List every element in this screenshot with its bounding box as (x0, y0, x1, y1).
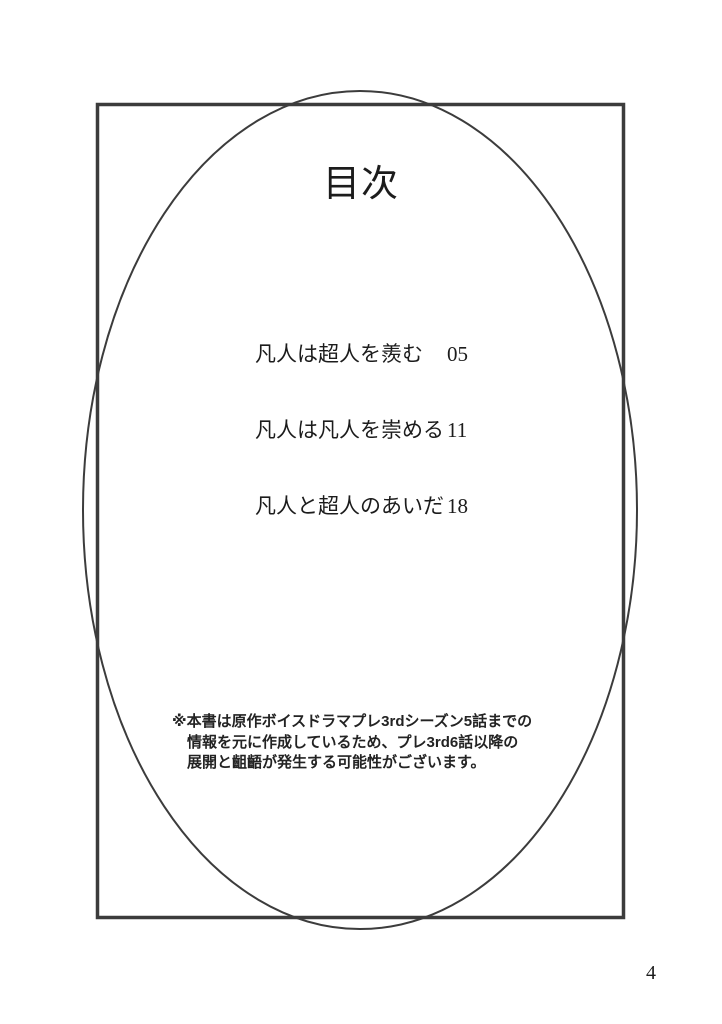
toc-entry-label: 凡人と超人のあいだ (255, 493, 447, 520)
page-title: 目次 (0, 165, 722, 206)
disclaimer-line: 情報を元に作成しているため、プレ3rd6話以降の (172, 733, 532, 754)
toc-entry-label: 凡人は凡人を崇める (255, 417, 447, 444)
toc-list: 凡人は超人を羨む 05 凡人は凡人を崇める 11 凡人と超人のあいだ 18 (255, 341, 468, 520)
toc-entry-label: 凡人は超人を羨む (255, 341, 447, 368)
disclaimer-line: ※本書は原作ボイスドラマプレ3rdシーズン5話までの (172, 712, 532, 733)
toc-entry: 凡人は凡人を崇める 11 (255, 417, 468, 444)
toc-entry-page-number: 18 (447, 493, 468, 520)
toc-entry: 凡人と超人のあいだ 18 (255, 493, 468, 520)
toc-page: 目次 凡人は超人を羨む 05 凡人は凡人を崇める 11 凡人と超人のあいだ 18… (0, 0, 722, 1024)
toc-entry: 凡人は超人を羨む 05 (255, 341, 468, 368)
toc-entry-page-number: 05 (447, 341, 468, 368)
toc-entry-page-number: 11 (447, 417, 467, 444)
disclaimer-note: ※本書は原作ボイスドラマプレ3rdシーズン5話までの 情報を元に作成しているため… (172, 712, 532, 774)
disclaimer-line: 展開と齟齬が発生する可能性がございます。 (172, 753, 532, 774)
page-number: 4 (646, 962, 656, 985)
